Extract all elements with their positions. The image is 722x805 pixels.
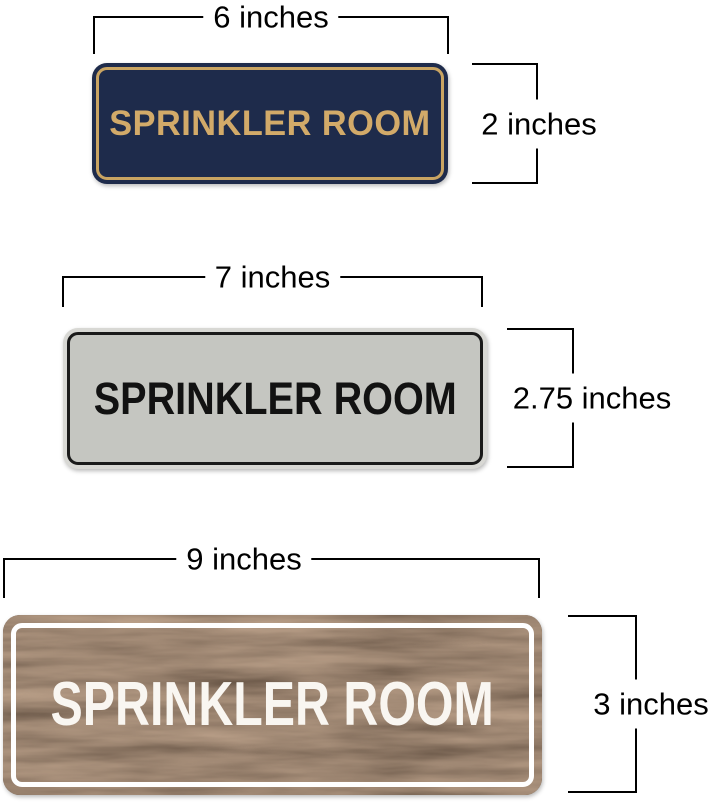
sign3-text-wrap: SPRINKLER ROOM: [3, 615, 542, 795]
sign2-text: SPRINKLER ROOM: [93, 376, 456, 421]
sign1-text-wrap: SPRINKLER ROOM: [92, 63, 448, 184]
sign3-width-bracket: 9 inches: [3, 558, 540, 598]
sign3-height-label: 3 inches: [583, 680, 718, 729]
sign3-text: SPRINKLER ROOM: [51, 674, 494, 736]
sign2-width-bracket: 7 inches: [62, 276, 483, 307]
sprinkler-sign-walnut-white: SPRINKLER ROOM: [3, 615, 542, 795]
sign2-height-label: 2.75 inches: [503, 374, 682, 423]
sign1-width-bracket: 6 inches: [93, 16, 449, 54]
sign2-height-bracket: 2.75 inches: [507, 328, 574, 468]
sign1-text: SPRINKLER ROOM: [109, 106, 430, 141]
sign3-height-bracket: 3 inches: [568, 615, 637, 793]
sign-size-diagram: 6 inches SPRINKLER ROOM 2 inches 7 inche…: [0, 0, 722, 805]
sign1-height-bracket: 2 inches: [472, 63, 538, 184]
sign2-width-label: 7 inches: [205, 260, 340, 295]
sign1-height-label: 2 inches: [471, 99, 606, 148]
sign2-text-wrap: SPRINKLER ROOM: [63, 328, 487, 469]
sign1-width-label: 6 inches: [203, 0, 338, 35]
sprinkler-sign-navy-gold: SPRINKLER ROOM: [92, 63, 448, 184]
sign3-width-label: 9 inches: [176, 542, 311, 577]
sprinkler-sign-silver-black: SPRINKLER ROOM: [63, 328, 487, 469]
